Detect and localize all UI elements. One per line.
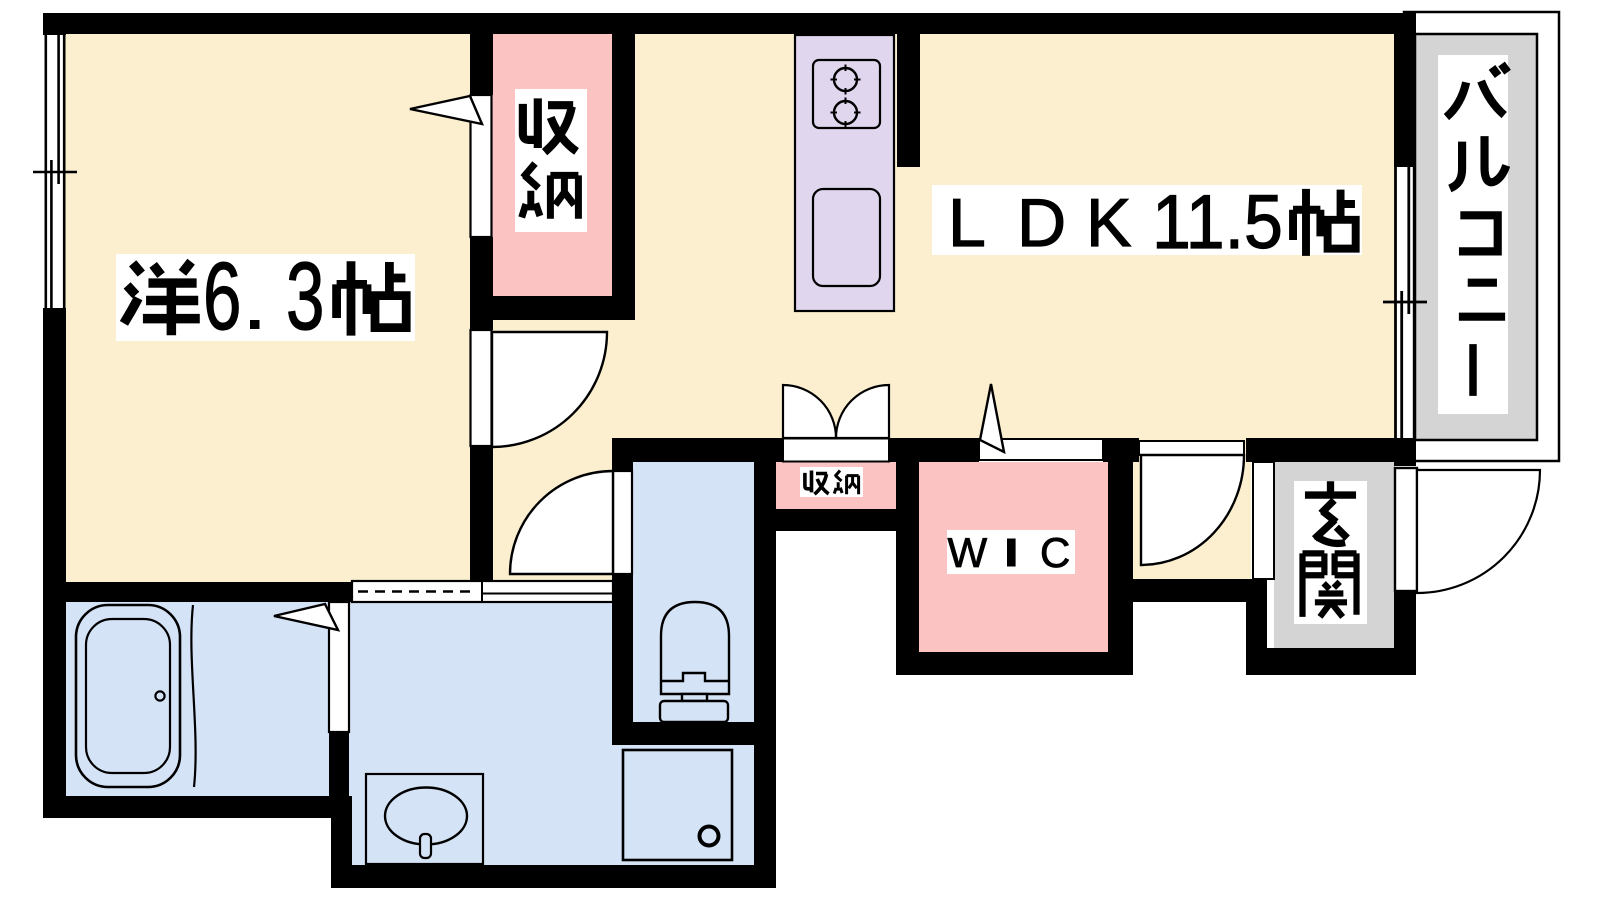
svg-text:L: L: [948, 185, 986, 261]
svg-text:W: W: [948, 529, 988, 576]
svg-text:D: D: [1017, 185, 1066, 261]
svg-text:3: 3: [286, 242, 324, 350]
svg-text:6: 6: [203, 242, 241, 350]
svg-text:C: C: [1040, 529, 1070, 576]
svg-text:11.5: 11.5: [1152, 180, 1283, 264]
svg-text:K: K: [1086, 185, 1131, 261]
